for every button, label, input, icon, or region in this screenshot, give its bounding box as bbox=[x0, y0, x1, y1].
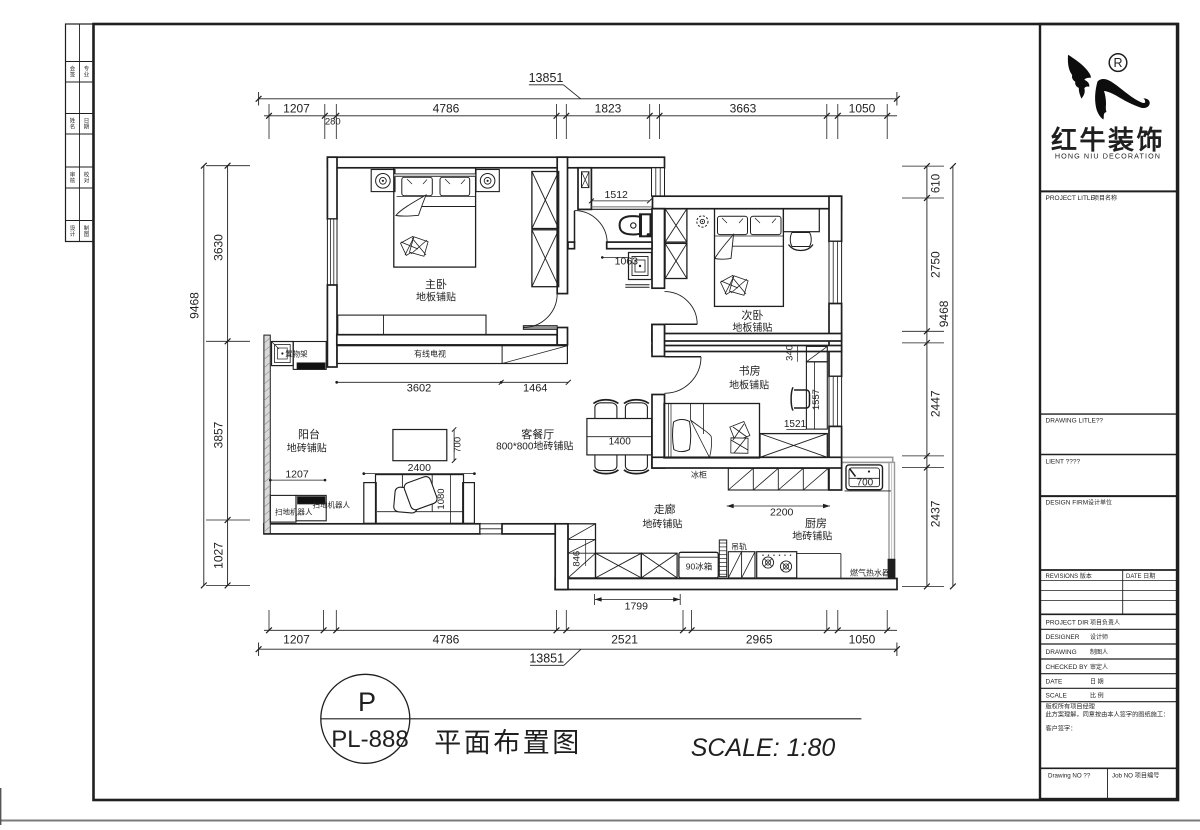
svg-text:1050: 1050 bbox=[849, 633, 876, 647]
svg-text:DESIGN FIRM: DESIGN FIRM bbox=[1046, 500, 1089, 507]
svg-text:1823: 1823 bbox=[595, 102, 622, 116]
svg-text:业: 业 bbox=[84, 71, 90, 79]
svg-text:2521: 2521 bbox=[611, 633, 638, 647]
svg-text:CHECKED BY: CHECKED BY bbox=[1046, 664, 1089, 671]
svg-text:1207: 1207 bbox=[283, 633, 310, 647]
svg-text:吊轨: 吊轨 bbox=[731, 542, 747, 552]
svg-text:校: 校 bbox=[84, 170, 90, 178]
svg-text:PROJECT DIR: PROJECT DIR bbox=[1046, 619, 1090, 626]
svg-text:1400: 1400 bbox=[609, 437, 632, 448]
svg-text:地板铺贴: 地板铺贴 bbox=[729, 379, 769, 392]
svg-text:1027: 1027 bbox=[212, 542, 226, 569]
svg-text:地板铺贴: 地板铺贴 bbox=[732, 321, 772, 334]
svg-text:P: P bbox=[358, 687, 376, 717]
svg-text:4786: 4786 bbox=[433, 633, 460, 647]
svg-text:2447: 2447 bbox=[929, 390, 943, 417]
svg-text:1799: 1799 bbox=[625, 601, 649, 613]
svg-text:DATE 日期: DATE 日期 bbox=[1126, 572, 1155, 580]
svg-text:计: 计 bbox=[70, 230, 76, 238]
svg-text:版权所有项目经理: 版权所有项目经理 bbox=[1046, 703, 1096, 711]
svg-text:800*800地砖铺贴: 800*800地砖铺贴 bbox=[496, 440, 573, 453]
svg-text:DESIGNER: DESIGNER bbox=[1046, 634, 1080, 641]
svg-text:地砖铺贴: 地砖铺贴 bbox=[792, 530, 832, 543]
svg-text:2965: 2965 bbox=[746, 633, 773, 647]
svg-text:地砖铺贴: 地砖铺贴 bbox=[642, 518, 682, 531]
svg-text:走廊: 走廊 bbox=[654, 502, 676, 516]
svg-text:R: R bbox=[1113, 56, 1122, 70]
svg-text:Job NO 项目编号: Job NO 项目编号 bbox=[1112, 772, 1159, 780]
svg-text:对: 对 bbox=[84, 176, 90, 184]
svg-text:1080: 1080 bbox=[436, 488, 447, 509]
svg-text:审: 审 bbox=[70, 170, 76, 178]
svg-text:1207: 1207 bbox=[283, 102, 310, 116]
svg-text:2437: 2437 bbox=[929, 500, 943, 527]
svg-text:制: 制 bbox=[84, 224, 90, 232]
svg-text:主卧: 主卧 bbox=[425, 278, 447, 291]
svg-text:610: 610 bbox=[931, 174, 943, 193]
svg-text:1063: 1063 bbox=[615, 255, 639, 267]
svg-text:审定人: 审定人 bbox=[1090, 663, 1108, 671]
svg-text:燃气热水器: 燃气热水器 bbox=[850, 568, 890, 578]
svg-text:13851: 13851 bbox=[529, 652, 564, 666]
svg-text:客餐厅: 客餐厅 bbox=[521, 427, 554, 441]
svg-text:9468: 9468 bbox=[188, 292, 202, 319]
svg-text:日: 日 bbox=[84, 118, 90, 125]
svg-text:SCALE: 1:80: SCALE: 1:80 bbox=[691, 734, 836, 762]
svg-text:DRAWING LITLE??: DRAWING LITLE?? bbox=[1046, 418, 1104, 425]
svg-text:HONG NIU DECORATION: HONG NIU DECORATION bbox=[1055, 152, 1161, 161]
svg-text:1464: 1464 bbox=[523, 383, 547, 395]
svg-text:置物架: 置物架 bbox=[285, 349, 308, 359]
svg-text:1207: 1207 bbox=[285, 469, 309, 481]
svg-text:图: 图 bbox=[84, 230, 90, 238]
svg-text:DATE: DATE bbox=[1046, 679, 1064, 686]
svg-text:扫地机器人: 扫地机器人 bbox=[313, 500, 351, 510]
svg-text:姓: 姓 bbox=[70, 117, 76, 125]
svg-text:3663: 3663 bbox=[730, 102, 757, 116]
svg-text:PL-888: PL-888 bbox=[331, 726, 408, 753]
svg-text:1050: 1050 bbox=[849, 102, 876, 116]
svg-text:专: 专 bbox=[84, 65, 90, 73]
svg-text:LIENT ????: LIENT ???? bbox=[1046, 459, 1081, 466]
svg-text:地板铺贴: 地板铺贴 bbox=[416, 291, 456, 304]
svg-text:扫地机器人: 扫地机器人 bbox=[275, 507, 313, 517]
svg-text:3602: 3602 bbox=[407, 383, 431, 395]
svg-text:REVISIONS 版本: REVISIONS 版本 bbox=[1046, 572, 1092, 580]
svg-text:次卧: 次卧 bbox=[741, 308, 763, 322]
svg-text:比 例: 比 例 bbox=[1090, 692, 1104, 700]
svg-text:此方案理解，同意按由本人签字的图纸施工：: 此方案理解，同意按由本人签字的图纸施工： bbox=[1046, 711, 1170, 719]
svg-text:340: 340 bbox=[784, 345, 795, 361]
svg-text:90冰箱: 90冰箱 bbox=[686, 562, 713, 572]
svg-text:PROJECT LITLE: PROJECT LITLE bbox=[1046, 195, 1096, 202]
svg-text:名: 名 bbox=[70, 123, 76, 131]
svg-text:2200: 2200 bbox=[770, 507, 794, 519]
svg-text:设计单位: 设计单位 bbox=[1088, 499, 1112, 507]
svg-text:书房: 书房 bbox=[739, 365, 761, 378]
svg-text:9468: 9468 bbox=[937, 300, 951, 327]
svg-text:签: 签 bbox=[70, 71, 76, 79]
svg-text:项目名称: 项目名称 bbox=[1093, 194, 1117, 202]
svg-text:期: 期 bbox=[84, 124, 90, 131]
svg-text:会: 会 bbox=[70, 65, 76, 73]
svg-text:核: 核 bbox=[70, 176, 76, 184]
svg-text:红牛装饰: 红牛装饰 bbox=[1051, 125, 1165, 155]
svg-text:地砖铺贴: 地砖铺贴 bbox=[287, 442, 327, 455]
svg-text:13851: 13851 bbox=[529, 71, 564, 85]
svg-text:2750: 2750 bbox=[929, 251, 943, 278]
svg-text:项目负责人: 项目负责人 bbox=[1090, 618, 1120, 626]
svg-text:DRAWING: DRAWING bbox=[1046, 649, 1077, 656]
svg-text:阳台: 阳台 bbox=[298, 427, 320, 441]
svg-text:3857: 3857 bbox=[212, 421, 226, 448]
svg-text:700: 700 bbox=[453, 437, 464, 453]
svg-text:Drawing NO ??: Drawing NO ?? bbox=[1048, 773, 1091, 780]
svg-text:设计师: 设计师 bbox=[1090, 633, 1108, 641]
svg-text:冰柜: 冰柜 bbox=[691, 470, 707, 480]
svg-text:846: 846 bbox=[572, 551, 583, 567]
svg-text:1512: 1512 bbox=[605, 189, 629, 201]
svg-text:280: 280 bbox=[325, 117, 341, 128]
svg-text:2400: 2400 bbox=[408, 462, 432, 474]
svg-text:厨房: 厨房 bbox=[805, 517, 827, 530]
svg-text:1521: 1521 bbox=[784, 419, 807, 430]
svg-text:设: 设 bbox=[70, 224, 76, 232]
svg-text:日 期: 日 期 bbox=[1090, 678, 1104, 686]
svg-text:4786: 4786 bbox=[433, 102, 460, 116]
svg-text:平面布置图: 平面布置图 bbox=[434, 728, 582, 758]
svg-text:客户签字：: 客户签字： bbox=[1046, 725, 1077, 733]
svg-text:3630: 3630 bbox=[212, 234, 226, 261]
svg-text:制图人: 制图人 bbox=[1090, 648, 1108, 656]
svg-text:SCALE: SCALE bbox=[1046, 693, 1068, 700]
svg-text:700: 700 bbox=[857, 478, 874, 489]
svg-text:1557: 1557 bbox=[811, 389, 822, 410]
svg-text:有线电视: 有线电视 bbox=[414, 349, 446, 359]
